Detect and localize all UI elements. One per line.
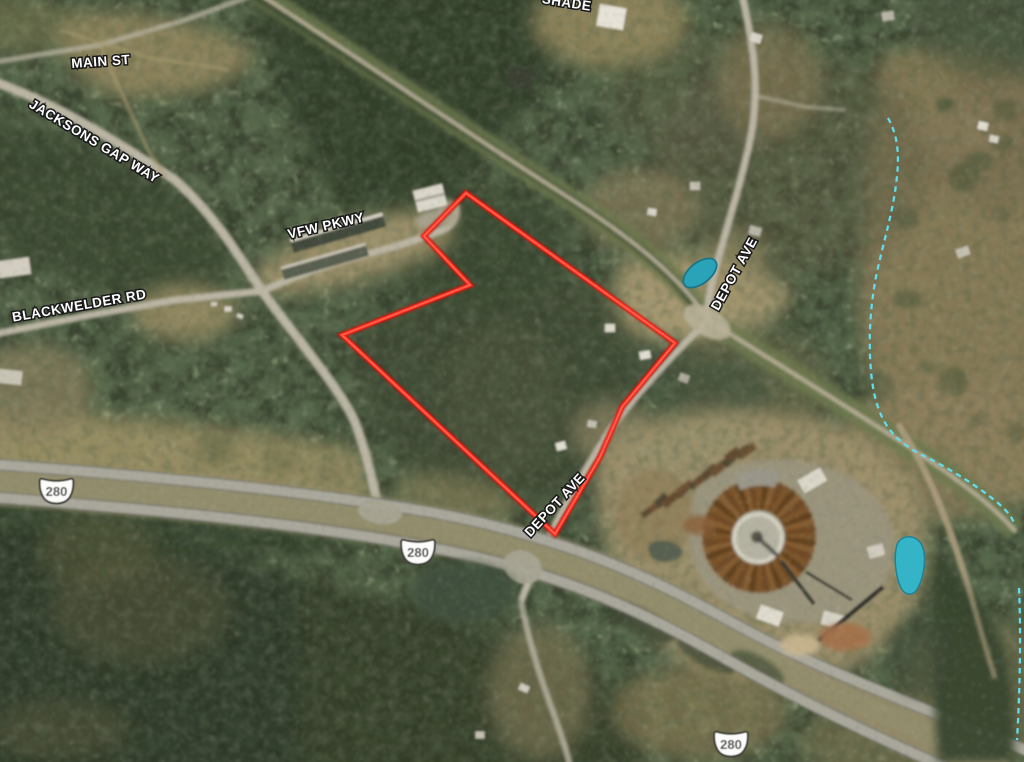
svg-text:280: 280 [407, 545, 429, 560]
svg-text:280: 280 [46, 484, 68, 499]
svg-text:280: 280 [720, 737, 742, 752]
